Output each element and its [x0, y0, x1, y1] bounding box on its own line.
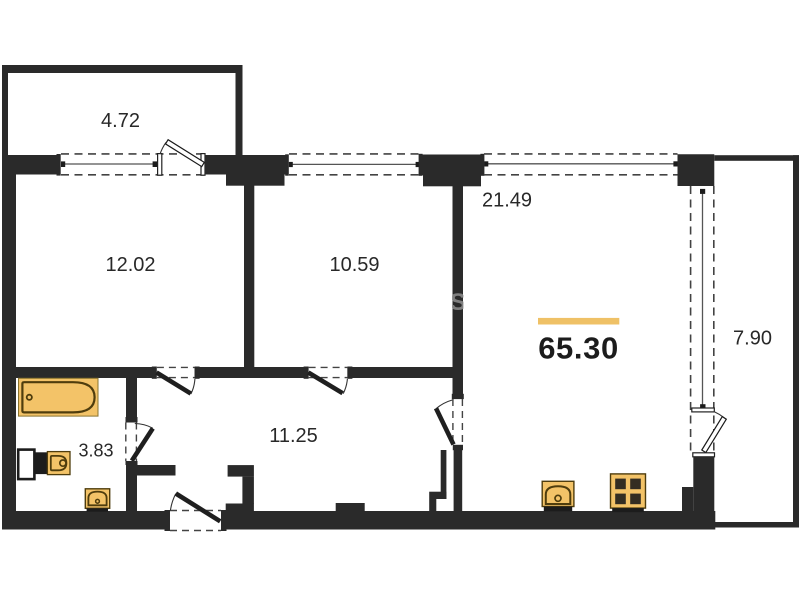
svg-text:10.59: 10.59 [329, 254, 379, 276]
svg-text:7.90: 7.90 [733, 328, 772, 350]
svg-text:21.49: 21.49 [482, 190, 532, 212]
svg-text:12.02: 12.02 [105, 254, 155, 276]
svg-text:65.30: 65.30 [538, 331, 619, 366]
svg-text:3.83: 3.83 [78, 441, 113, 461]
svg-text:11.25: 11.25 [269, 425, 318, 447]
svg-text:4.72: 4.72 [101, 110, 140, 132]
